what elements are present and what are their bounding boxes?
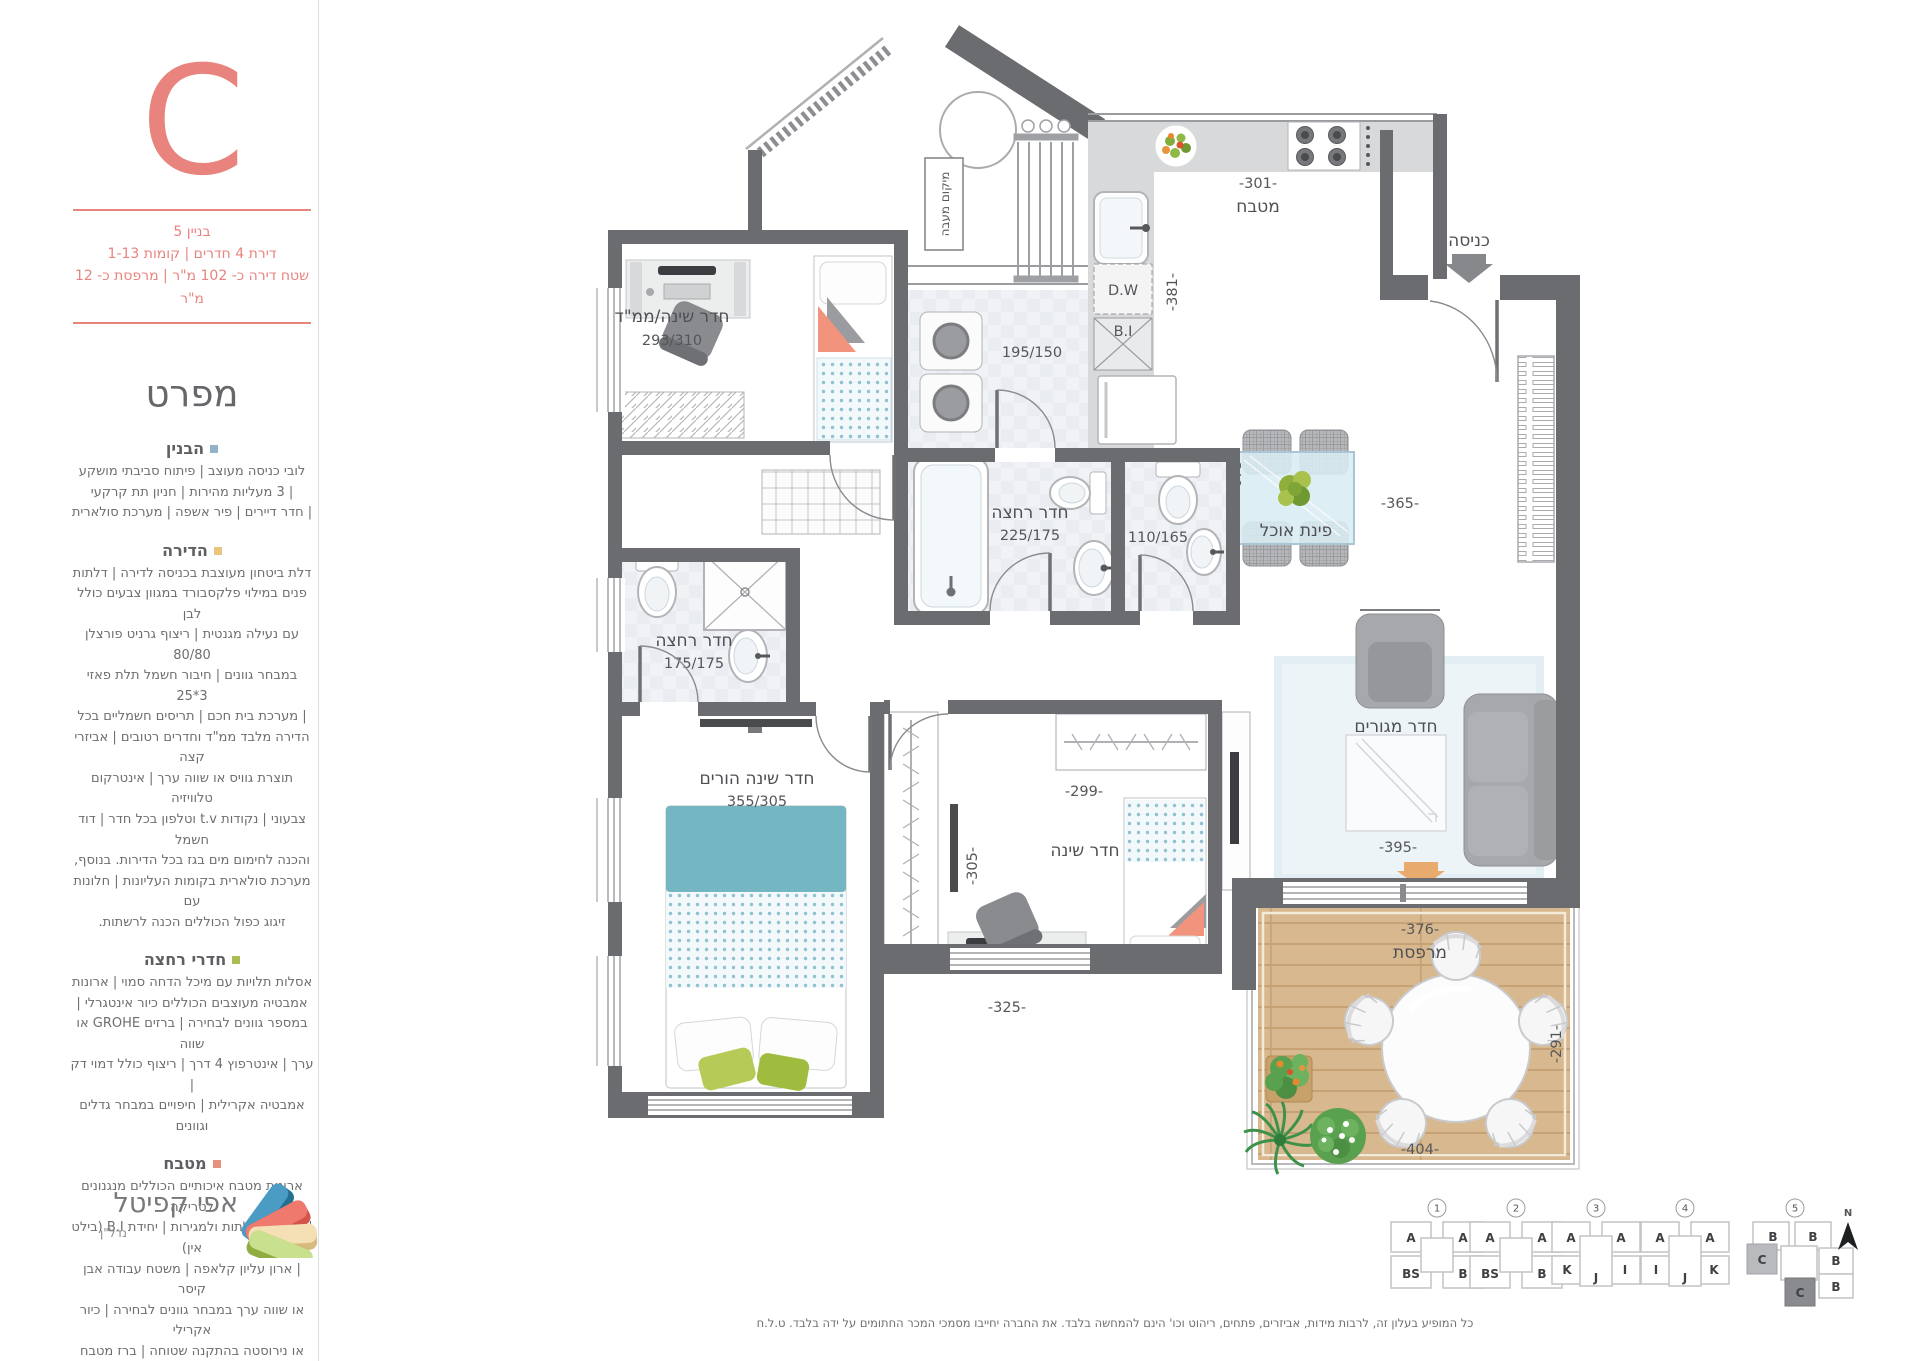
north-arrow: N (1838, 1208, 1858, 1250)
window (648, 1096, 852, 1115)
window (604, 798, 625, 902)
parents-label: חדר שינה הורים (700, 769, 815, 789)
built-in-unit: B.I (1094, 318, 1152, 370)
unit-letter: A (1616, 1231, 1626, 1245)
balcony-dim-bottom: -404- (1401, 1142, 1439, 1158)
balcony-label: מרפסת (1393, 943, 1447, 963)
built-in-label: B.I (1114, 324, 1133, 340)
key-plan-building-3: 3 A A K J I (1552, 1199, 1640, 1286)
unit-letter: C (1758, 1253, 1767, 1267)
bedroom2-label: חדר שינה (1050, 841, 1119, 861)
unit-letter: B (1808, 1230, 1817, 1244)
living-label: חדר מגורים (1354, 717, 1437, 737)
parents-dim: 355/305 (727, 794, 787, 810)
plant-orange-tree (1265, 1054, 1312, 1102)
unit-letter: A (1537, 1231, 1547, 1245)
dishwasher: D.W (1094, 264, 1152, 314)
unit-letter: A (1458, 1231, 1468, 1245)
washer-door (934, 324, 968, 358)
fruit-bowl (1155, 125, 1197, 167)
dishwasher-label: D.W (1108, 283, 1138, 299)
double-bed (666, 806, 846, 1092)
unit-letter: A (1655, 1231, 1665, 1245)
unit-letter: A (1566, 1231, 1576, 1245)
toilet (636, 556, 678, 617)
window (604, 956, 625, 1066)
window (950, 948, 1090, 970)
key-plan-building-5: 5 B B C B B C (1747, 1199, 1853, 1306)
kitchen-dim: -301- (1239, 176, 1277, 192)
building-number: 5 (1792, 1204, 1798, 1215)
wall-tv (950, 804, 958, 892)
bath2-label: חדר רחצה (655, 631, 732, 651)
bedroom2-dim-top: -299- (1065, 784, 1103, 800)
key-plans: 1 A A BS B 2 A A BS B 3 A A K J I (1391, 1199, 1858, 1306)
wc-dim: 110/165 (1128, 530, 1188, 546)
monitor (658, 266, 716, 275)
parents-door (816, 716, 870, 772)
unit-letter: K (1709, 1263, 1719, 1277)
living-dim: -395- (1379, 840, 1417, 856)
kitchen-label: מטבח (1236, 197, 1280, 217)
mouse (646, 288, 654, 296)
blanket (1126, 800, 1204, 862)
bed-headboard (666, 806, 846, 892)
saferoom-dim: 293/310 (642, 333, 702, 349)
saferoom-closet (616, 392, 744, 438)
unit-letter: J (1682, 1271, 1687, 1285)
bath1-dim: 225/175 (1000, 528, 1060, 544)
unit-letter: BS (1481, 1267, 1499, 1281)
sofa-cushion (1468, 786, 1528, 856)
saferoom-label: חדר שינה/ממ"ד (614, 307, 729, 327)
saferoom-furniture (616, 256, 892, 442)
building-number: 4 (1682, 1204, 1688, 1215)
floor-plan: מיקום מעבה D.W B.I -301- מטבח -381- 195 (0, 0, 1928, 1361)
bookshelf (1518, 356, 1554, 562)
saferoom-bed (814, 256, 892, 442)
tv-cabinet (1222, 712, 1250, 890)
bath2-dim: 175/175 (664, 656, 724, 672)
window (604, 578, 625, 652)
unit-letter: I (1654, 1263, 1658, 1277)
disclaimer: כל המופיע בעלון זה, לרבות מידות, אביזרים… (330, 1316, 1900, 1330)
unit-letter: B (1768, 1230, 1777, 1244)
unit-letter: A (1485, 1231, 1495, 1245)
dining-label: פינת אוכל (1260, 521, 1332, 541)
kitchen-top-wall-line (1088, 114, 1437, 121)
condenser-label: מיקום מעבה (938, 172, 952, 237)
tv (1230, 752, 1239, 844)
unit-letter: J (1593, 1271, 1598, 1285)
unit-letter: B (1831, 1254, 1840, 1268)
louver-wall (754, 48, 890, 158)
entrance-label: כניסה (1448, 231, 1490, 251)
parents-bedroom: חדר שינה הורים 355/305 (666, 719, 846, 1092)
dining-dim: -365- (1381, 496, 1419, 512)
window-slider (1283, 882, 1527, 904)
carpet (1346, 735, 1446, 831)
sofa (1464, 694, 1562, 866)
bedroom2-dim-left: -305- (965, 847, 981, 885)
kitchen-side-dim: -381- (1165, 273, 1181, 311)
entrance-arrow-icon (1445, 254, 1493, 283)
unit-letter: B (1458, 1267, 1467, 1281)
unit-letter: A (1406, 1231, 1416, 1245)
unit-letter: A (1705, 1231, 1715, 1245)
desk-leg (734, 262, 746, 316)
stove (1288, 122, 1370, 170)
drying-rack (1014, 120, 1078, 282)
building-number: 2 (1513, 1204, 1519, 1215)
key-plan-building-2: 2 A A BS B (1470, 1199, 1562, 1288)
closet-left (884, 712, 938, 960)
pillow (820, 262, 886, 304)
tv-bracket (748, 727, 762, 733)
kitchen-sink (1094, 192, 1150, 264)
condenser-area: מיקום מעבה (746, 36, 1098, 284)
building-number: 1 (1434, 1204, 1440, 1215)
armchair (1356, 610, 1444, 708)
single-bed (1124, 798, 1206, 968)
entrance-door-arc (1430, 301, 1497, 382)
dryer-door (934, 386, 968, 420)
dining: פינת אוכל -365- (1236, 430, 1419, 566)
key-plan-building-4: 4 A A I J K (1641, 1199, 1729, 1286)
unit-letter: K (1562, 1263, 1572, 1277)
unit-letter: BS (1402, 1267, 1420, 1281)
blanket (817, 358, 891, 440)
keyboard (664, 284, 710, 299)
key-plan-building-1: 1 A A BS B (1391, 1199, 1483, 1288)
boiler (940, 92, 1016, 168)
bed-blanket (666, 892, 846, 988)
sofa-cushion (1468, 712, 1528, 782)
fridge (1098, 376, 1176, 444)
closet-top (1056, 714, 1206, 770)
bedroom2-dim-bottom: -325- (988, 1000, 1026, 1016)
louver-outline (746, 38, 883, 149)
plant-flower-bush (1310, 1108, 1366, 1164)
unit-letter: B (1831, 1280, 1840, 1294)
unit-letter: C (1796, 1286, 1805, 1300)
laundry-dim: 195/150 (1002, 345, 1062, 361)
hall-closet (762, 470, 880, 534)
wall-tv (700, 719, 812, 727)
shower (704, 554, 786, 630)
north-label: N (1844, 1208, 1852, 1219)
north-arrow-icon (1838, 1222, 1858, 1250)
building-number: 3 (1593, 1204, 1599, 1215)
sofa-back (1534, 700, 1558, 860)
balcony-dim-top: -376- (1401, 922, 1439, 938)
balcony-dim-right: -291- (1549, 1025, 1565, 1063)
unit-letter: B (1537, 1267, 1546, 1281)
bath1-label: חדר רחצה (991, 503, 1068, 523)
toilet (1156, 462, 1200, 524)
unit-letter: I (1623, 1263, 1627, 1277)
